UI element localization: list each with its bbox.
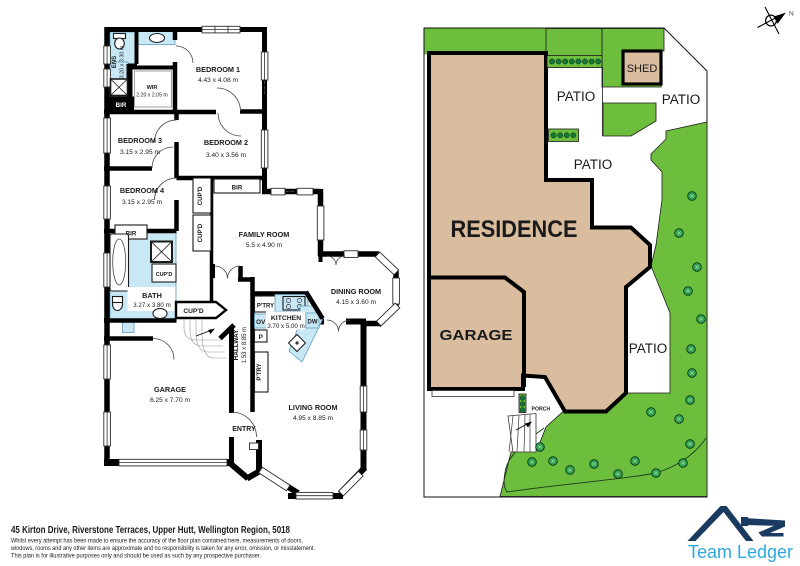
svg-text:4.43 x 4.08 m: 4.43 x 4.08 m <box>198 77 238 84</box>
svg-text:windows, rooms and any other i: windows, rooms and any other items are a… <box>10 545 315 552</box>
svg-text:PATIO: PATIO <box>662 92 701 107</box>
svg-text:SHED: SHED <box>627 63 658 75</box>
svg-text:ENTRY: ENTRY <box>232 426 256 433</box>
svg-text:3.15 x 2.95 m: 3.15 x 2.95 m <box>120 149 160 156</box>
svg-text:6.25 x 7.70 m: 6.25 x 7.70 m <box>150 397 190 404</box>
svg-text:3.70 x 5.00 m: 3.70 x 5.00 m <box>267 323 305 330</box>
svg-text:PATIO: PATIO <box>557 89 596 104</box>
svg-text:4.15 x 3.60 m: 4.15 x 3.60 m <box>336 299 376 306</box>
svg-text:3.27 x 3.80 m: 3.27 x 3.80 m <box>133 302 171 309</box>
svg-text:WIR: WIR <box>147 85 158 91</box>
svg-text:GARAGE: GARAGE <box>154 385 186 394</box>
svg-text:BEDROOM 2: BEDROOM 2 <box>204 138 248 147</box>
svg-text:CUP'D: CUP'D <box>156 272 173 278</box>
svg-text:2.20 x 2.05 m: 2.20 x 2.05 m <box>136 93 167 99</box>
svg-text:CUP'D: CUP'D <box>198 186 204 205</box>
svg-text:P'TRY: P'TRY <box>257 304 274 310</box>
svg-text:RESIDENCE: RESIDENCE <box>451 216 578 243</box>
svg-text:Team Ledger: Team Ledger <box>688 542 793 562</box>
svg-text:GARAGE: GARAGE <box>440 327 513 344</box>
svg-text:45 Kirton Drive, Riverstone Te: 45 Kirton Drive, Riverstone Terraces, Up… <box>11 524 290 536</box>
svg-text:BIR: BIR <box>232 185 243 192</box>
svg-text:3.20 x 3.30 m: 3.20 x 3.30 m <box>120 45 126 78</box>
svg-text:BIR: BIR <box>116 102 127 109</box>
svg-text:BEDROOM 1: BEDROOM 1 <box>196 65 240 74</box>
svg-text:5.5 x 4.90 m: 5.5 x 4.90 m <box>246 242 283 249</box>
svg-text:1.53 x 8.85 m: 1.53 x 8.85 m <box>242 327 248 363</box>
svg-text:PATIO: PATIO <box>574 157 613 172</box>
svg-text:DINING ROOM: DINING ROOM <box>331 287 381 296</box>
svg-text:P: P <box>259 334 264 341</box>
svg-text:BATH: BATH <box>142 291 162 300</box>
svg-text:4.95 x 8.85 m: 4.95 x 8.85 m <box>293 415 333 422</box>
svg-text:PORCH: PORCH <box>532 407 551 413</box>
svg-text:LIVING ROOM: LIVING ROOM <box>288 403 337 412</box>
svg-text:ENS: ENS <box>112 56 118 68</box>
svg-text:FAMILY ROOM: FAMILY ROOM <box>239 230 290 239</box>
svg-text:DW: DW <box>308 320 318 326</box>
svg-text:Whilst every attempt has been: Whilst every attempt has been made to en… <box>11 538 303 545</box>
svg-text:BEDROOM 4: BEDROOM 4 <box>120 186 165 195</box>
svg-text:This plan is for illustrative: This plan is for illustrative purposes o… <box>11 553 261 560</box>
svg-text:PATIO: PATIO <box>629 341 668 356</box>
svg-text:CUP'D: CUP'D <box>198 223 204 242</box>
svg-text:P'TRY: P'TRY <box>257 363 263 380</box>
svg-text:CUP'D: CUP'D <box>183 308 203 315</box>
svg-text:KITCHEN: KITCHEN <box>271 315 301 322</box>
svg-text:BEDROOM 3: BEDROOM 3 <box>118 136 162 145</box>
svg-text:3.40 x 3.56 m: 3.40 x 3.56 m <box>206 152 246 159</box>
svg-text:HALLWAY: HALLWAY <box>233 329 240 360</box>
svg-text:3.15 x 2.95 m: 3.15 x 2.95 m <box>122 199 162 206</box>
svg-text:N: N <box>789 11 794 18</box>
svg-text:OV: OV <box>256 319 266 326</box>
